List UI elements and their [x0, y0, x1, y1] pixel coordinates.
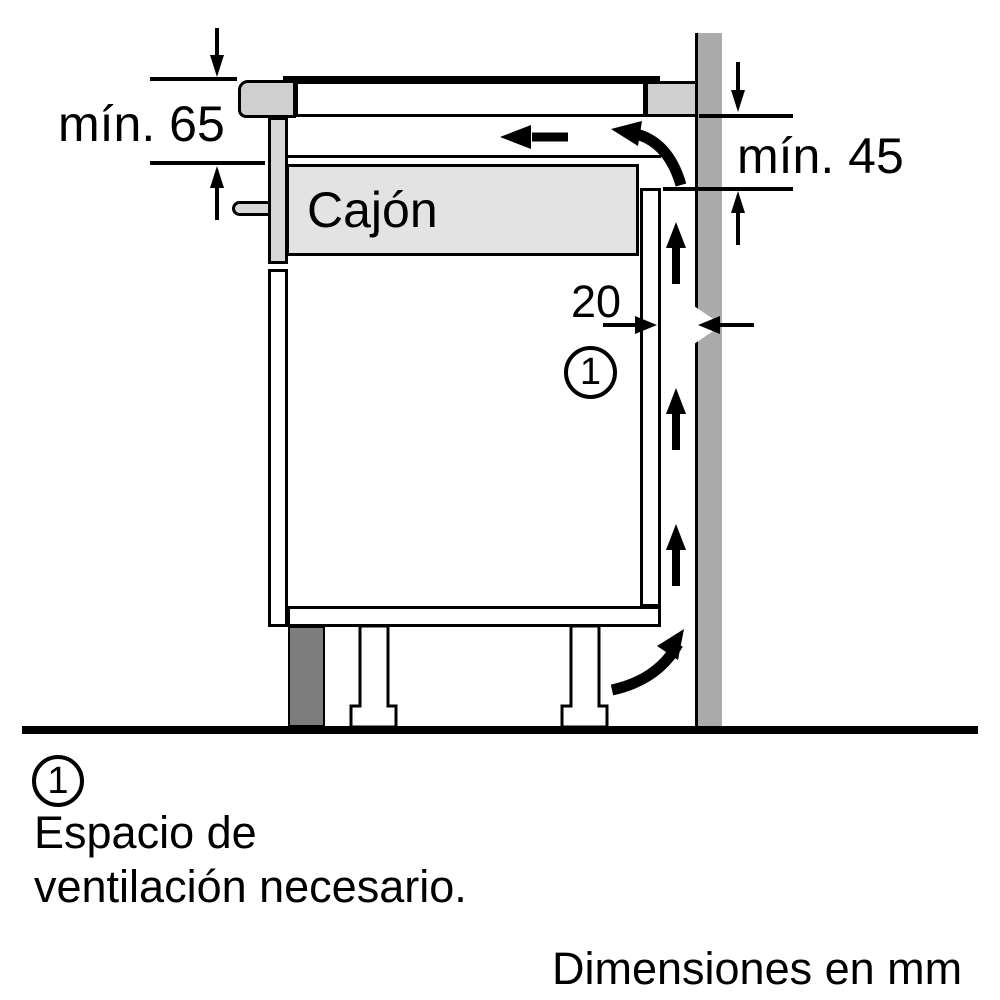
drawer-handle: [232, 201, 271, 216]
legend-note-line2: ventilación necesario.: [34, 860, 467, 914]
airflow-arrow-up-icon: [666, 524, 686, 586]
drawer-label: Cajón: [289, 181, 438, 239]
wall: [695, 33, 722, 727]
drawer-box: Cajón: [286, 164, 639, 256]
callout-1-marker: 1: [564, 346, 617, 399]
cabinet-leg-back: [562, 626, 607, 727]
airflow-arrow-up-icon: [666, 388, 686, 450]
dimension-label-min45: mín. 45: [737, 131, 904, 181]
legend-callout-1-number: 1: [47, 760, 68, 803]
drawer-front-panel: [268, 117, 288, 264]
units-note: Dimensiones en mm: [552, 946, 962, 991]
airflow-corner-bottom-arrow-icon: [612, 629, 684, 690]
cabinet-back-panel: [640, 188, 661, 607]
cabinet-door-front: [268, 269, 288, 627]
cabinet-bottom-panel: [287, 606, 661, 627]
cabinet-plinth: [288, 626, 325, 727]
airflow-arrow-up-icon: [666, 222, 686, 284]
airflow-arrow-left-icon: [500, 125, 568, 149]
installation-diagram-canvas: Cajón mín. 65 mín. 45 20 1 1 Espacio de …: [0, 0, 1000, 1000]
callout-1-number: 1: [580, 351, 601, 394]
niche-floor-line: [287, 155, 661, 158]
dimension-arrow-down-icon: [731, 62, 745, 112]
dimension-label-min65: mín. 65: [58, 99, 225, 149]
dimension-arrow-up-icon: [210, 166, 224, 220]
dimension-label-20: 20: [571, 279, 621, 324]
dimension-arrow-down-icon: [210, 28, 224, 77]
cabinet-leg-front: [351, 626, 396, 727]
worktop-front-block: [238, 80, 296, 118]
floor-line: [22, 726, 978, 734]
hob-body: [295, 81, 646, 117]
legend-callout-1-marker: 1: [32, 755, 84, 807]
dimension-arrow-up-icon: [731, 191, 745, 245]
legend-note-line1: Espacio de: [34, 806, 257, 860]
worktop-back-block: [645, 81, 698, 117]
